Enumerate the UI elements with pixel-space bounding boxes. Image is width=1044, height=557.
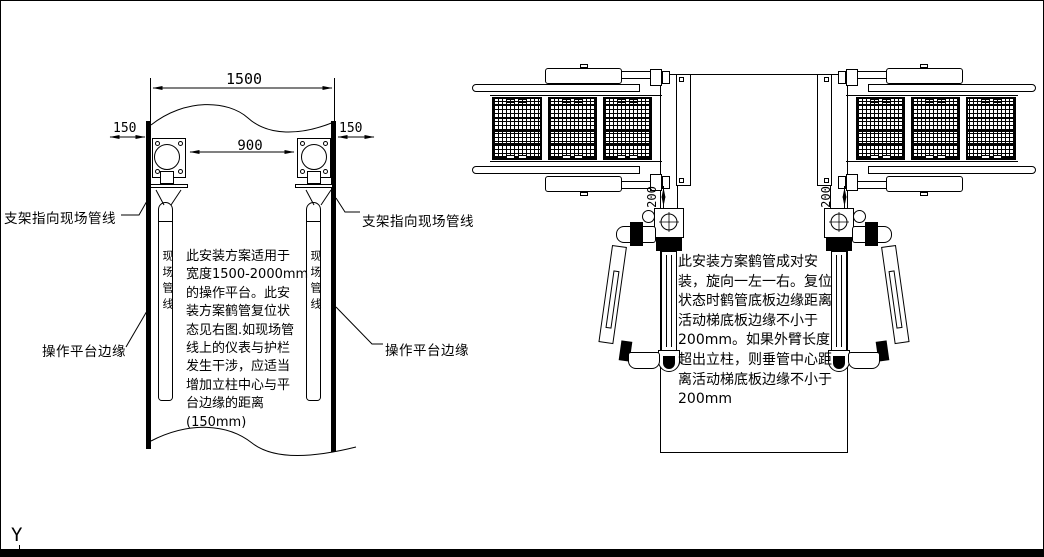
bracket-diagonal xyxy=(171,190,181,205)
bracket-diagonal xyxy=(156,190,164,205)
break-line-bottom xyxy=(151,427,356,455)
bracket-diagonal xyxy=(306,190,314,205)
bottom-black-bar xyxy=(0,549,1044,557)
cad-drawing-canvas: 现场管线 现场管线 1500 150 150 900 支架指向现场管线 操作平台… xyxy=(0,0,1044,557)
leader-bracket-right xyxy=(336,198,360,212)
leader-bracket-left xyxy=(121,201,147,215)
bracket-diagonal xyxy=(321,190,331,205)
leader-edge-right xyxy=(336,307,383,344)
linework-overlay xyxy=(0,0,1044,557)
leader-edge-left xyxy=(126,311,147,347)
break-line-top xyxy=(151,105,334,132)
